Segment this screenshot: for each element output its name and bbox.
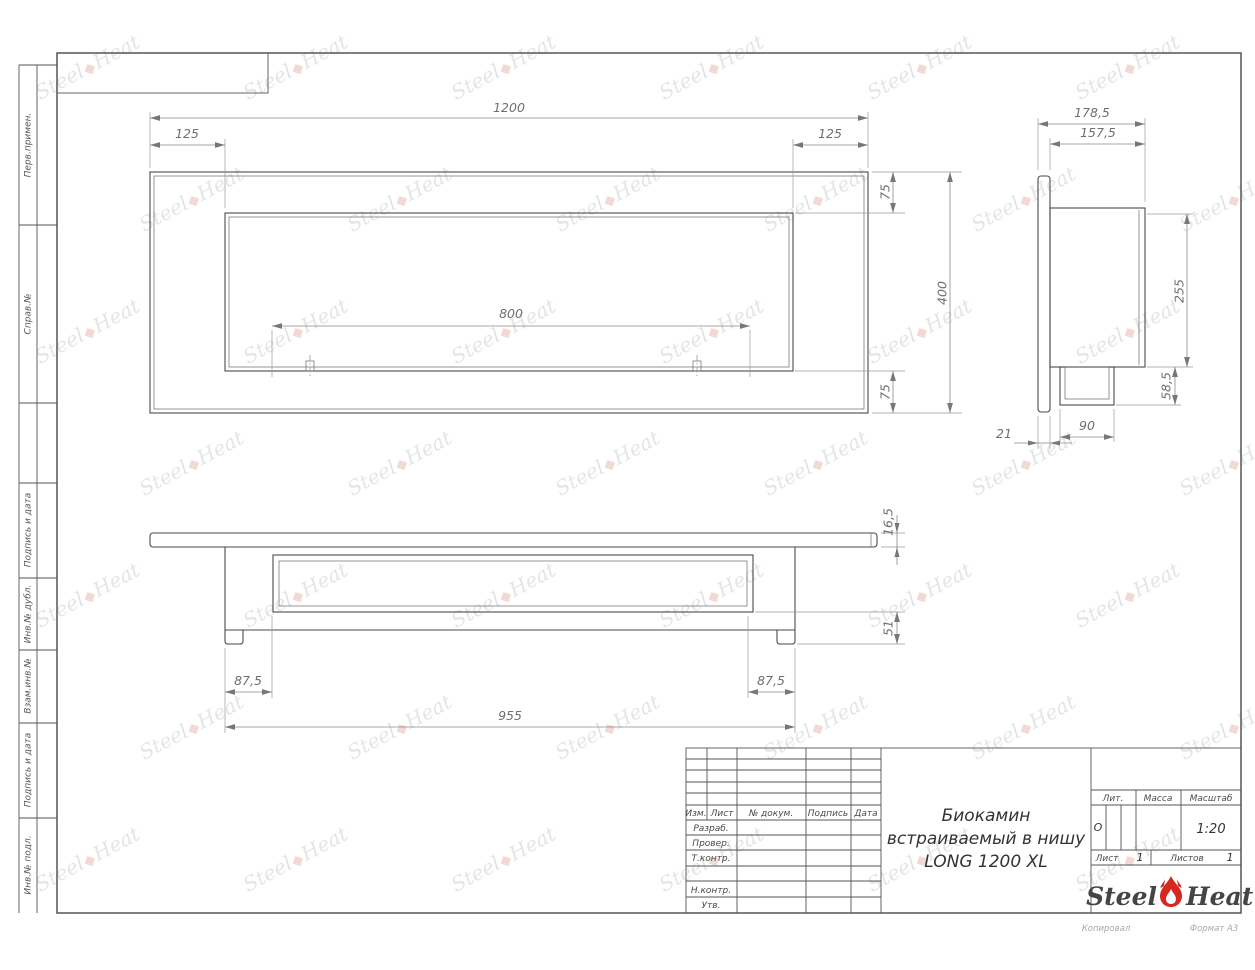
dim-side-depth-total: 178,5 [1074,105,1110,120]
frame-border [57,53,1241,913]
tb-header-podpis: Подпись [808,809,848,819]
steelheat-logo: Steel Heat [1086,876,1254,911]
side-view-body [1050,208,1145,367]
front-view [150,172,868,413]
tb-row-prover: Провер. [692,839,729,849]
tb-row-utv: Утв. [702,901,721,911]
margin-label-vzam-inv: Взам.инв.№ [24,658,34,713]
dim-side-depth-body: 157,5 [1080,125,1116,140]
margin-label-inv-podl: Инв.№ подл. [24,835,34,894]
side-view-dimensions: 178,5 157,5 255 58,5 21 90 [996,105,1193,449]
dim-front-opening: 800 [499,306,523,321]
dim-side-bottom-offset: 58,5 [1159,372,1174,400]
dim-bottom-base-height: 51 [881,620,896,636]
doc-title-line1: Биокамин [942,806,1031,826]
dim-front-height: 400 [935,281,950,305]
dim-bottom-plate-thickness: 16,5 [881,508,896,536]
bottom-view-foot-right [777,630,795,644]
tb-lit-label: Лит. [1102,794,1124,804]
dim-bottom-inset-right: 87,5 [757,673,785,688]
tb-list-value: 1 [1137,851,1144,864]
bottom-view [150,533,877,644]
footer-format-label: Формат А3 [1190,924,1238,934]
tb-scale-value: 1:20 [1196,822,1225,837]
bottom-view-top-plate [150,533,877,547]
margin-label-perv-primen: Перв.примен. [24,113,34,178]
side-view [1038,176,1145,412]
tb-lit-value: О [1094,821,1103,834]
tb-massa-label: Масса [1144,794,1173,804]
flame-icon [1160,876,1182,907]
dim-front-inset-left: 125 [175,126,199,141]
tb-header-list: Лист [710,809,735,819]
tb-header-data: Дата [853,809,877,819]
technical-drawing: Перв.примен. Справ.№ Подпись и дата Инв.… [0,0,1255,970]
margin-label-podpis-data-1: Подпись и дата [24,493,34,568]
tb-scale-label: Масштаб [1190,794,1233,804]
doc-title-line2: встраиваемый в нишу [887,829,1086,849]
margin-label-sprav: Справ.№ [24,294,34,335]
tb-row-tkontr: Т.контр. [691,854,730,864]
margin-label-podpis-data-2: Подпись и дата [24,733,34,808]
bottom-view-dimensions: 16,5 51 87,5 87,5 955 [225,508,905,733]
front-view-opening [225,213,793,371]
tb-listov-label: Листов [1169,854,1204,864]
title-block: Изм. Лист № докум. Подпись Дата Разраб. … [685,748,1253,913]
footer-copied-label: Копировал [1082,924,1131,934]
tb-header-izm: Изм. [685,809,706,819]
corner-stamp-box [57,53,268,93]
bottom-view-opening [273,555,753,612]
tb-list-label: Лист [1095,854,1120,864]
logo-word-steel: Steel [1086,882,1157,911]
side-view-flange [1038,176,1050,412]
sheet-frame [57,53,1241,913]
dim-front-top-offset: 75 [878,184,893,200]
drawing-sheet: Steel◆HeatSteel◆HeatSteel◆HeatSteel◆Heat… [0,0,1255,970]
logo-word-heat: Heat [1185,882,1254,911]
tb-row-razrab: Разраб. [693,824,728,834]
dim-side-body-height: 255 [1172,279,1187,303]
front-view-outline [150,172,868,413]
dim-side-flange-depth: 21 [996,426,1012,441]
dim-front-inset-right: 125 [818,126,842,141]
dim-side-burner-width: 90 [1079,418,1095,433]
dim-bottom-inset-left: 87,5 [234,673,262,688]
tb-listov-value: 1 [1227,851,1234,864]
dim-front-width: 1200 [493,100,525,115]
left-margin-column: Перв.примен. Справ.№ Подпись и дата Инв.… [19,65,57,913]
front-view-dimensions: 1200 125 125 800 75 400 75 [150,100,962,413]
margin-label-inv-dubl: Инв.№ дубл. [24,585,34,644]
bottom-view-foot-left [225,630,243,644]
tb-header-doc-num: № докум. [748,809,793,819]
dim-front-bottom-offset: 75 [878,384,893,400]
doc-title-line3: LONG 1200 XL [924,852,1047,872]
tb-row-nkontr: Н.контр. [691,886,731,896]
dim-bottom-body-width: 955 [498,708,522,723]
